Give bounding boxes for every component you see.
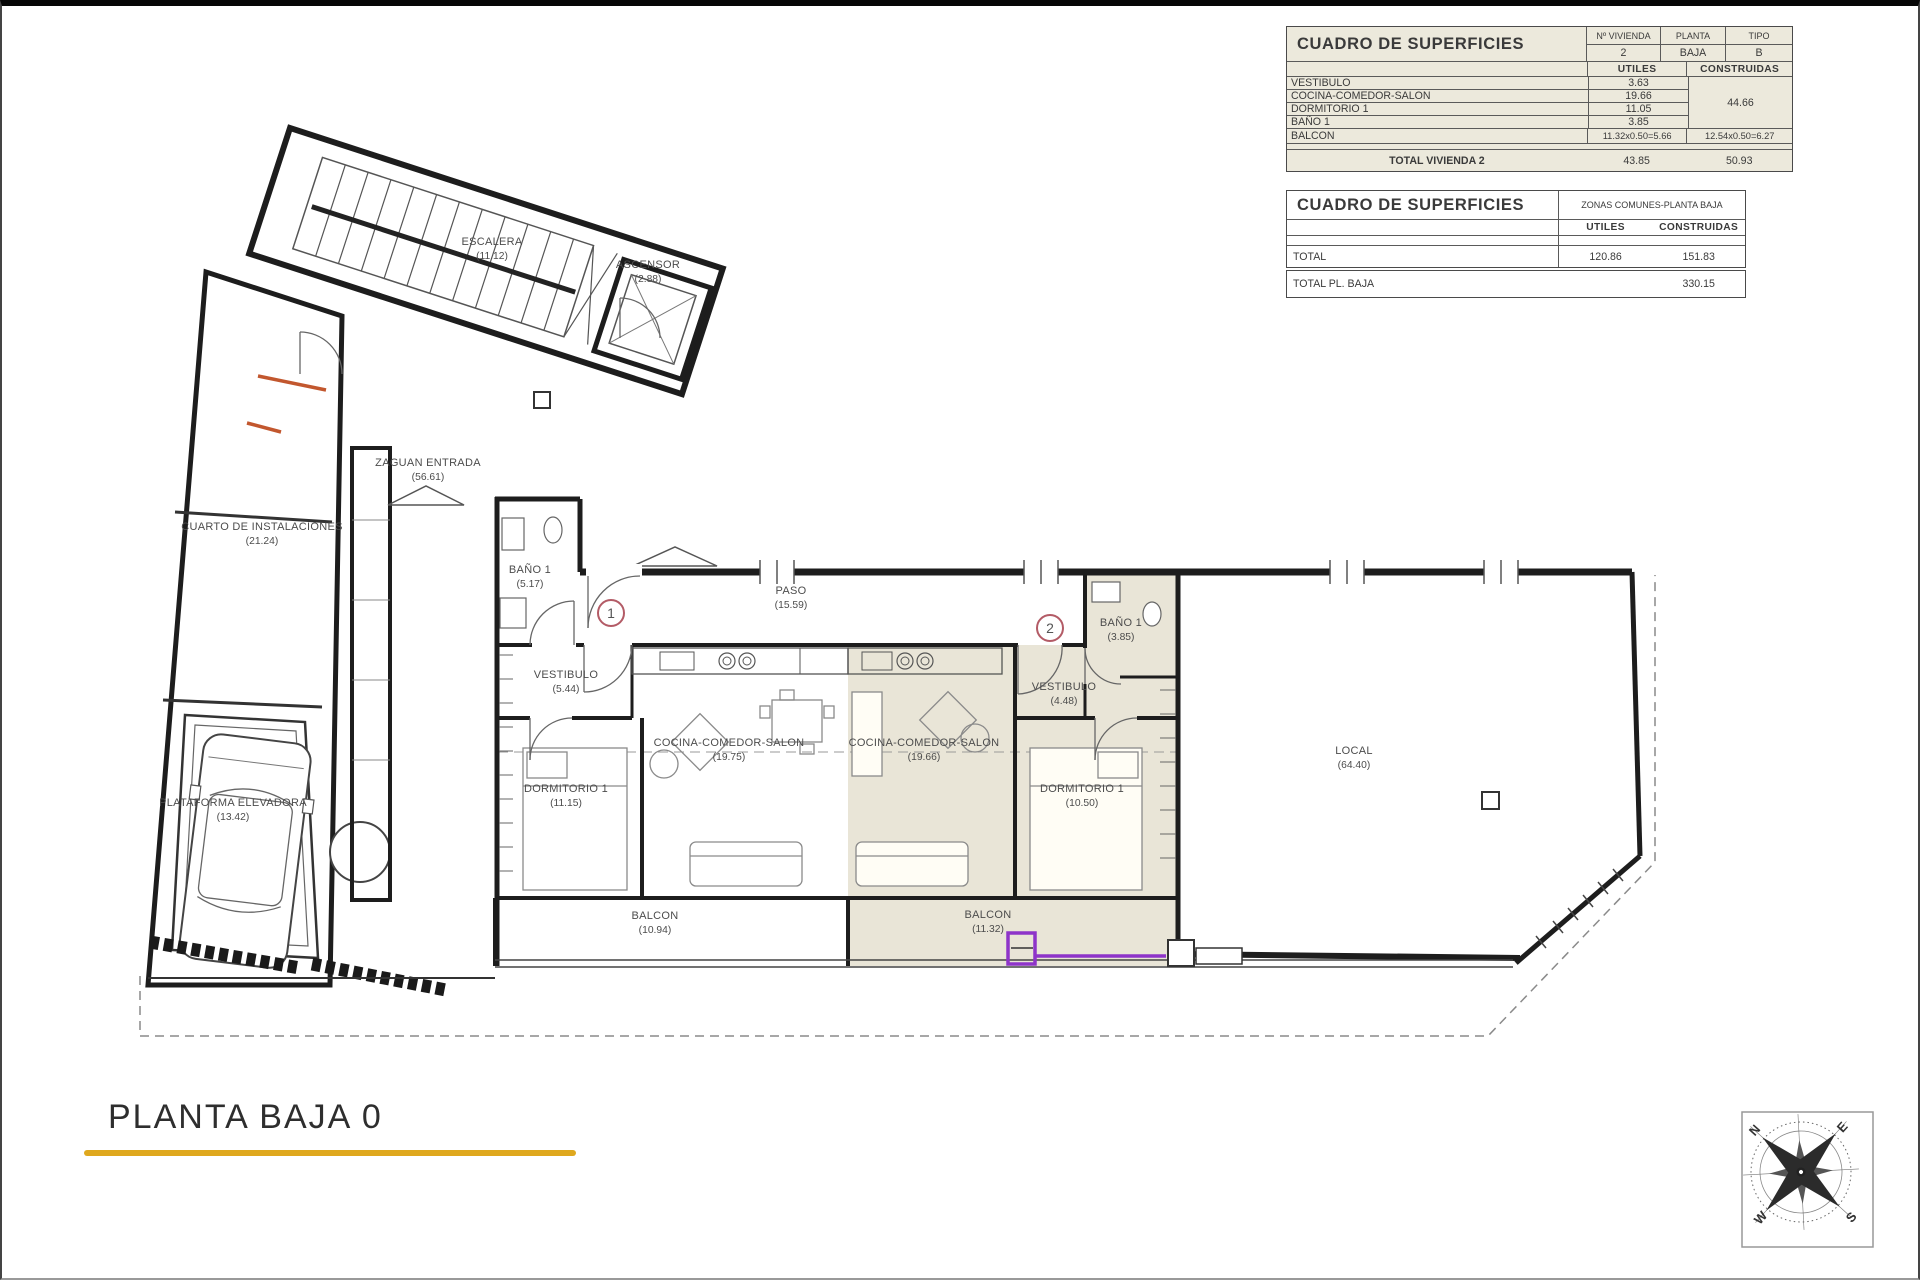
compass-rose: N E S W bbox=[1703, 1075, 1902, 1273]
room-label-escalera: ESCALERA bbox=[461, 236, 522, 248]
total-label: TOTAL VIVIENDA 2 bbox=[1287, 150, 1587, 171]
total-utiles: 120.86 bbox=[1558, 246, 1653, 267]
unit-marker-2-label: 2 bbox=[1046, 620, 1054, 636]
kitchen-counter-v1 bbox=[632, 648, 848, 674]
room-area-vestibulo-v2: (4.48) bbox=[1051, 696, 1078, 707]
room-label-ascensor: ASCENSOR bbox=[616, 259, 680, 271]
surface-table-comunes: CUADRO DE SUPERFICIES ZONAS COMUNES-PLAN… bbox=[1286, 190, 1746, 268]
room-area-paso: (15.59) bbox=[775, 600, 808, 611]
table-row-balcon: BALCON 11.32x0.50=5.66 12.54x0.50=6.27 bbox=[1287, 128, 1792, 143]
room-area-zaguan: (56.61) bbox=[412, 472, 445, 483]
table-row: VESTIBULO 3.63 bbox=[1287, 77, 1688, 89]
table1-title: CUADRO DE SUPERFICIES bbox=[1287, 27, 1586, 61]
val-planta: BAJA bbox=[1660, 44, 1725, 61]
table-row: DORMITORIO 1 11.05 bbox=[1287, 102, 1688, 115]
val-num-vivienda: 2 bbox=[1586, 44, 1660, 61]
total-planta-box: TOTAL PL. BAJA 330.15 bbox=[1286, 270, 1746, 298]
unit-marker-2: 2 bbox=[1037, 615, 1063, 641]
left-annex bbox=[148, 272, 495, 990]
room-label-balcon-v2: BALCON bbox=[964, 909, 1011, 921]
row-label: VESTIBULO bbox=[1287, 77, 1588, 89]
room-area-escalera: (11.12) bbox=[476, 251, 508, 262]
construidas-merged: 44.66 bbox=[1688, 77, 1792, 128]
room-area-dormitorio-v2: (10.50) bbox=[1066, 798, 1099, 809]
col-utiles: UTILES bbox=[1558, 220, 1653, 235]
row-utiles: 11.32x0.50=5.66 bbox=[1587, 129, 1687, 143]
row-label: BAÑO 1 bbox=[1287, 116, 1588, 128]
room-area-vestibulo-v1: (5.44) bbox=[553, 684, 580, 695]
table-total-row: TOTAL VIVIENDA 2 43.85 50.93 bbox=[1287, 149, 1792, 171]
room-label-paso: PASO bbox=[776, 585, 807, 597]
total-construidas: 151.83 bbox=[1652, 246, 1745, 267]
row-label: COCINA-COMEDOR-SALON bbox=[1287, 90, 1588, 102]
row-label: BALCON bbox=[1287, 129, 1587, 143]
room-label-balcon-v1: BALCON bbox=[631, 910, 678, 922]
row-label: DORMITORIO 1 bbox=[1287, 103, 1588, 115]
col-construidas: CONSTRUIDAS bbox=[1652, 220, 1745, 235]
room-label-plataforma: PLATAFORMA ELEVADORA bbox=[159, 797, 307, 809]
table2-subtitle: ZONAS COMUNES-PLANTA BAJA bbox=[1558, 191, 1745, 219]
orange-markup bbox=[247, 376, 326, 432]
room-area-balcon-v2: (11.32) bbox=[972, 924, 1004, 935]
total-label: TOTAL bbox=[1287, 246, 1558, 267]
sheet-title: PLANTA BAJA 0 bbox=[108, 1098, 383, 1137]
column bbox=[534, 392, 550, 408]
room-area-dormitorio-v1: (11.15) bbox=[550, 798, 582, 809]
room-area-bano1-v1: (5.17) bbox=[517, 579, 544, 590]
total-planta-label: TOTAL PL. BAJA bbox=[1287, 271, 1652, 297]
unit-marker-1: 1 bbox=[598, 600, 624, 626]
row-utiles: 11.05 bbox=[1588, 103, 1688, 115]
col-utiles: UTILES bbox=[1587, 62, 1687, 76]
val-tipo: B bbox=[1725, 44, 1792, 61]
room-label-vestibulo-v2: VESTIBULO bbox=[1032, 681, 1097, 693]
row-utiles: 3.63 bbox=[1588, 77, 1688, 89]
room-area-bano1-v2: (3.85) bbox=[1108, 632, 1135, 643]
room-area-ascensor: (2.88) bbox=[635, 274, 662, 285]
unit-marker-1-label: 1 bbox=[607, 605, 615, 621]
col-num-vivienda: Nº VIVIENDA bbox=[1586, 27, 1660, 44]
room-label-cocina-v2: COCINA-COMEDOR-SALON bbox=[849, 737, 1000, 749]
room-label-cuarto-instalaciones: CUARTO DE INSTALACIONES bbox=[181, 521, 343, 533]
col-tipo: TIPO bbox=[1725, 27, 1792, 44]
total-utiles: 43.85 bbox=[1587, 150, 1687, 171]
row-construidas: 12.54x0.50=6.27 bbox=[1686, 129, 1792, 143]
col-planta: PLANTA bbox=[1660, 27, 1725, 44]
room-area-cuarto-instalaciones: (21.24) bbox=[246, 536, 279, 547]
table-row: COCINA-COMEDOR-SALON 19.66 bbox=[1287, 89, 1688, 102]
table-total-row: TOTAL 120.86 151.83 bbox=[1287, 245, 1745, 267]
rail-post bbox=[1196, 948, 1242, 964]
title-underline bbox=[84, 1150, 576, 1156]
surface-table-vivienda2: CUADRO DE SUPERFICIES Nº VIVIENDA PLANTA… bbox=[1286, 26, 1793, 172]
row-utiles: 19.66 bbox=[1588, 90, 1688, 102]
room-label-cocina-v1: COCINA-COMEDOR-SALON bbox=[654, 737, 805, 749]
room-label-zaguan: ZAGUAN ENTRADA bbox=[375, 457, 481, 469]
room-area-plataforma: (13.42) bbox=[217, 812, 250, 823]
room-area-cocina-v1: (19.75) bbox=[713, 752, 746, 763]
ramp-circle bbox=[330, 822, 390, 882]
room-label-bano1-v2: BAÑO 1 bbox=[1100, 616, 1142, 629]
room-area-local: (64.40) bbox=[1338, 760, 1371, 771]
column bbox=[1482, 792, 1499, 809]
room-label-dormitorio-v2: DORMITORIO 1 bbox=[1040, 783, 1124, 795]
room-label-vestibulo-v1: VESTIBULO bbox=[534, 669, 599, 681]
rail-post bbox=[1168, 940, 1194, 966]
total-planta-value: 330.15 bbox=[1652, 271, 1745, 297]
total-construidas: 50.93 bbox=[1686, 150, 1792, 171]
room-area-cocina-v2: (19.66) bbox=[908, 752, 941, 763]
room-label-bano1-v1: BAÑO 1 bbox=[509, 563, 551, 576]
room-label-dormitorio-v1: DORMITORIO 1 bbox=[524, 783, 608, 795]
col-construidas: CONSTRUIDAS bbox=[1686, 62, 1792, 76]
room-area-balcon-v1: (10.94) bbox=[639, 925, 672, 936]
table2-title: CUADRO DE SUPERFICIES bbox=[1287, 191, 1558, 219]
row-utiles: 3.85 bbox=[1588, 116, 1688, 128]
table-row: BAÑO 1 3.85 bbox=[1287, 115, 1688, 128]
room-label-local: LOCAL bbox=[1335, 745, 1373, 757]
